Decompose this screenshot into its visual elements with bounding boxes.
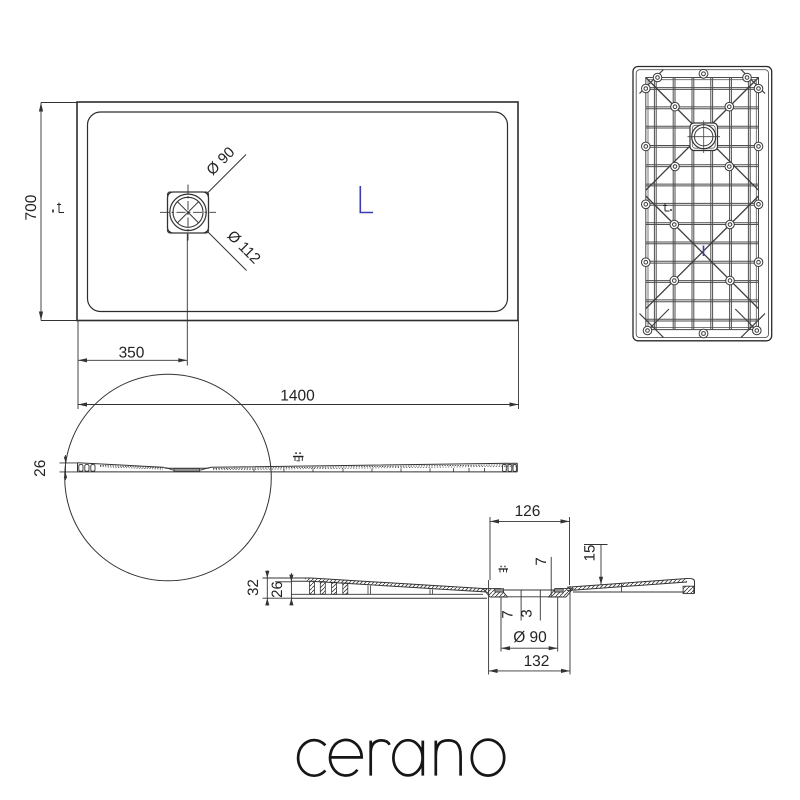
svg-text:3: 3 <box>519 609 536 617</box>
svg-text:126: 126 <box>515 503 541 520</box>
svg-text:Ø 112: Ø 112 <box>224 227 264 267</box>
svg-text:26: 26 <box>32 460 49 477</box>
svg-text:7: 7 <box>500 610 517 618</box>
svg-text:Ø 90: Ø 90 <box>203 144 238 179</box>
svg-text:26: 26 <box>269 581 286 598</box>
svg-text:700: 700 <box>23 194 40 220</box>
svg-text:1400: 1400 <box>280 388 315 405</box>
svg-text:Ø 90: Ø 90 <box>513 629 547 646</box>
svg-text:350: 350 <box>119 345 145 362</box>
svg-text:132: 132 <box>524 653 550 670</box>
svg-text:7: 7 <box>533 557 550 565</box>
svg-text:15: 15 <box>582 545 599 562</box>
svg-text:32: 32 <box>245 579 262 596</box>
